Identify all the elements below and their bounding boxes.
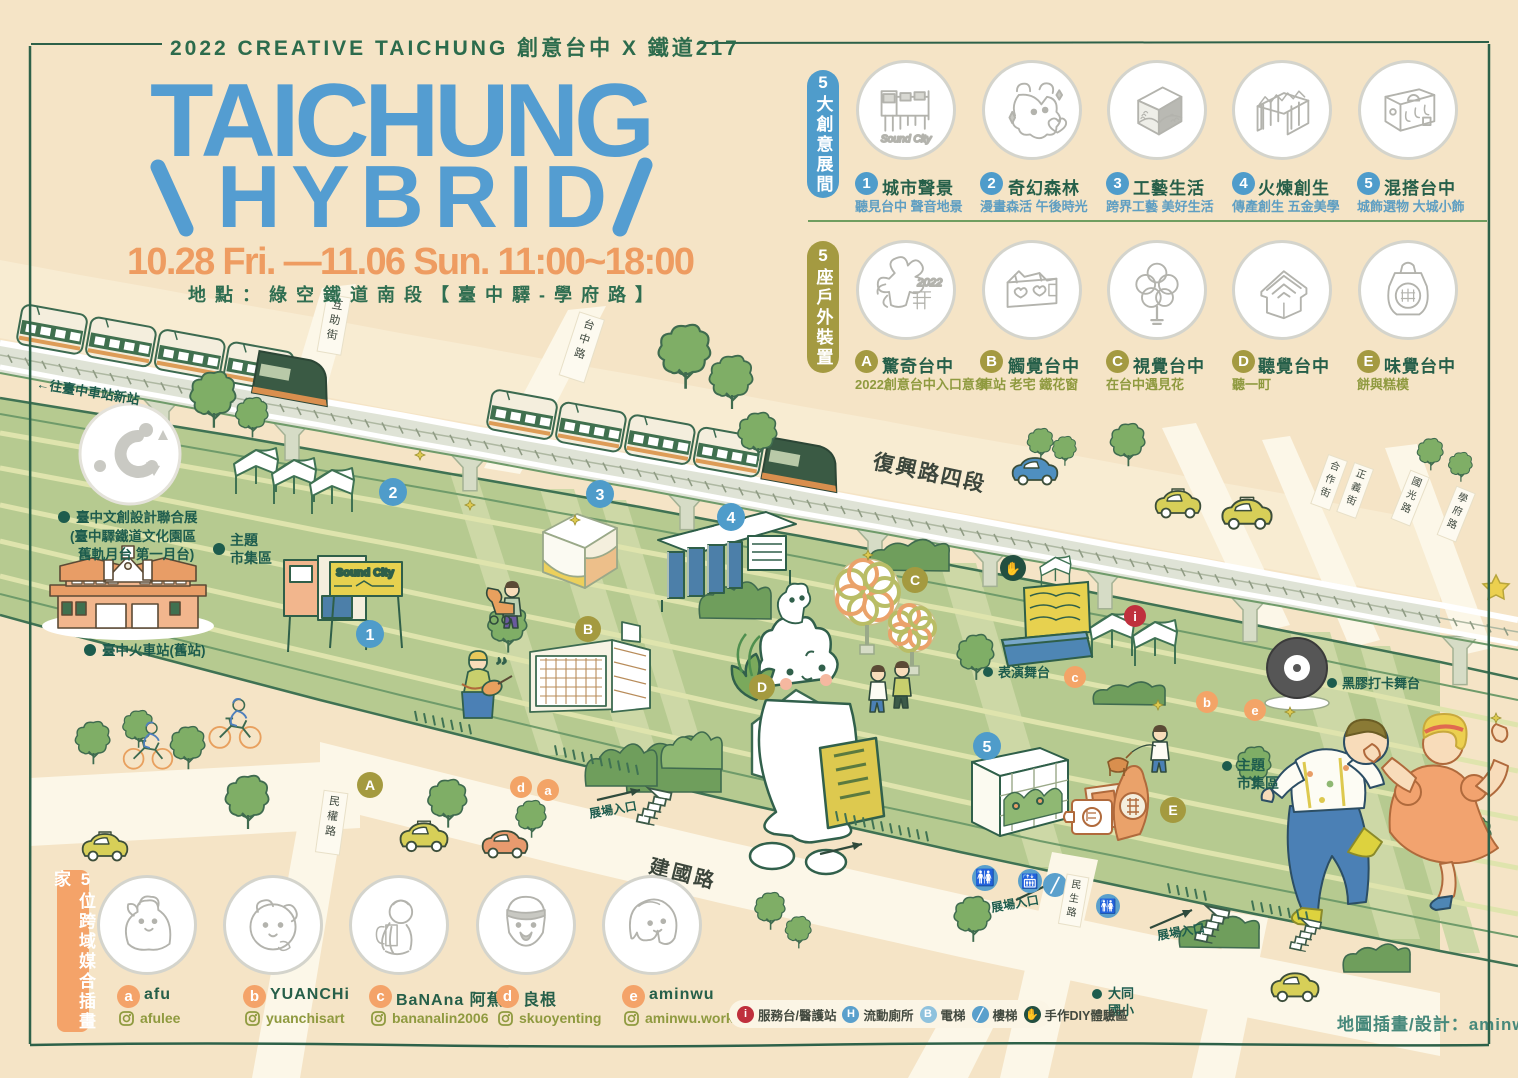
svg-text:市集區: 市集區	[230, 550, 272, 566]
svg-text:A: A	[365, 777, 375, 793]
svg-text:地圖插畫/設計：aminwu: 地圖插畫/設計：aminwu	[1337, 1014, 1518, 1034]
svg-text:路: 路	[324, 824, 337, 838]
svg-text:舊軌月台 第一月台): 舊軌月台 第一月台)	[78, 546, 194, 562]
svg-text:e: e	[1251, 703, 1258, 718]
svg-text:民: 民	[328, 795, 341, 808]
svg-text:♪♪: ♪♪	[496, 655, 507, 667]
svg-text:臺中火車站(舊站): 臺中火車站(舊站)	[102, 642, 206, 658]
svg-text:c: c	[1071, 670, 1078, 685]
svg-text:🚻: 🚻	[1099, 898, 1116, 915]
svg-text:表演舞台: 表演舞台	[997, 665, 1050, 680]
svg-text:2: 2	[389, 485, 398, 502]
svg-text:主題: 主題	[1237, 757, 1266, 773]
svg-text:主題: 主題	[230, 532, 259, 548]
svg-text:HYBRID: HYBRID	[217, 147, 607, 246]
svg-text:大同: 大同	[1108, 986, 1134, 1001]
svg-text:i: i	[1133, 609, 1137, 624]
svg-text:E: E	[1168, 802, 1177, 818]
svg-text:4: 4	[727, 510, 736, 527]
svg-text:╱: ╱	[1049, 876, 1061, 894]
svg-text:臺中文創設計聯合展: 臺中文創設計聯合展	[76, 509, 198, 525]
svg-text:C: C	[910, 572, 920, 588]
svg-text:D: D	[757, 679, 767, 695]
svg-text:1: 1	[366, 627, 375, 644]
svg-text:✋: ✋	[1005, 561, 1021, 576]
svg-text:🛗: 🛗	[1021, 873, 1038, 890]
svg-text:民: 民	[1070, 878, 1082, 892]
svg-text:d: d	[517, 780, 525, 795]
svg-text:b: b	[1203, 695, 1211, 710]
svg-text:(臺中驛鐵道文化園區: (臺中驛鐵道文化園區	[70, 528, 196, 544]
svg-text:🚻: 🚻	[975, 868, 995, 887]
svg-text:Sound City: Sound City	[881, 134, 932, 145]
svg-text:地點：綠空鐵道南段【臺中驛-學府路】: 地點：綠空鐵道南段【臺中驛-學府路】	[188, 284, 653, 305]
svg-text:10.28 Fri. —11.06 Sun. 11:00~1: 10.28 Fri. —11.06 Sun. 11:00~18:00	[127, 241, 695, 283]
svg-text:B: B	[583, 621, 593, 637]
svg-text:權: 權	[326, 809, 339, 823]
svg-text:Sound City: Sound City	[336, 567, 395, 579]
svg-text:3: 3	[596, 487, 605, 504]
svg-text:a: a	[544, 783, 552, 798]
svg-text:5: 5	[983, 739, 992, 756]
svg-text:市集區: 市集區	[1237, 775, 1279, 791]
svg-text:黑膠打卡舞台: 黑膠打卡舞台	[1342, 676, 1420, 691]
svg-text:2022: 2022	[916, 277, 943, 289]
